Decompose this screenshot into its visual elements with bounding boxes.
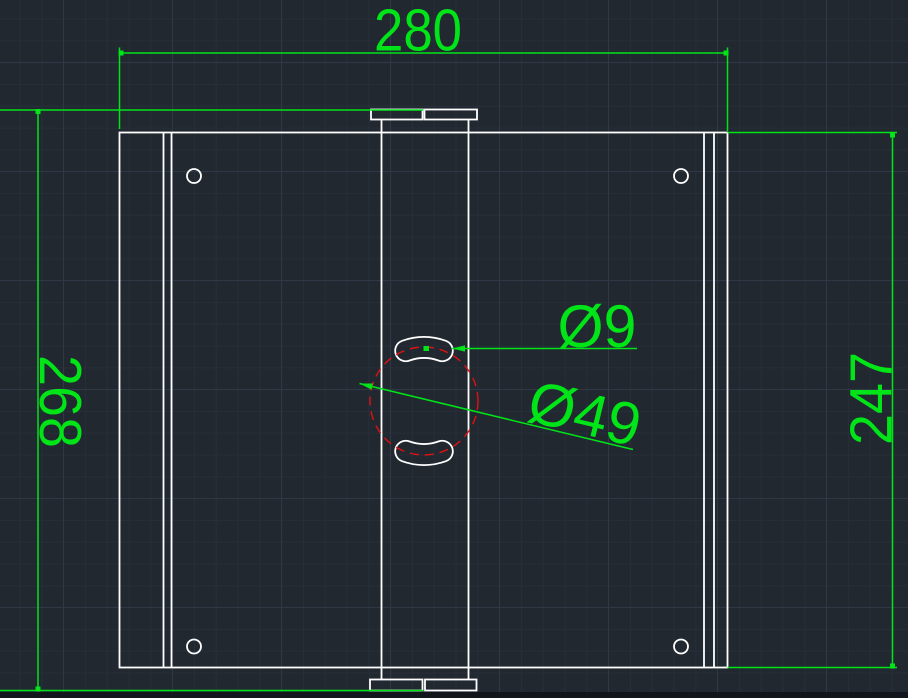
dimension-label-268[interactable]: 268	[27, 355, 93, 448]
leader-label-bolt-circle-dia[interactable]: Ø49	[522, 368, 648, 460]
corner-hole-bottom-left[interactable]	[187, 640, 201, 654]
corner-hole-top-right[interactable]	[674, 169, 688, 183]
dimension-label-247[interactable]: 247	[839, 352, 905, 445]
bolt-circle-centerline[interactable]	[370, 347, 478, 455]
slot-bottom[interactable]	[395, 441, 453, 465]
leader-label-slot-dia[interactable]: Ø9	[558, 293, 637, 360]
canvas-bottom-edge	[0, 692, 908, 698]
dimension-overall-height[interactable]: 268	[0, 109, 423, 692]
tab-bottom-right[interactable]	[425, 680, 477, 691]
leader-bolt-circle-diameter[interactable]: Ø49	[359, 368, 648, 460]
tab-top-right[interactable]	[425, 110, 478, 120]
endpoint-marker	[724, 51, 729, 56]
slot-center-marker	[424, 346, 430, 351]
leader-slot-diameter[interactable]: Ø9	[424, 293, 638, 360]
tab-bottom-left[interactable]	[370, 680, 423, 691]
endpoint-marker	[890, 664, 895, 669]
endpoint-marker	[36, 109, 41, 114]
cad-drawing-canvas[interactable]: 280 268 247 Ø9	[0, 0, 908, 698]
dimension-plate-height[interactable]: 247	[728, 133, 905, 669]
endpoint-marker	[36, 687, 41, 692]
dimension-label-280[interactable]: 280	[374, 0, 462, 64]
corner-hole-bottom-right[interactable]	[674, 640, 688, 654]
tab-top-left[interactable]	[371, 110, 423, 120]
corner-hole-top-left[interactable]	[187, 169, 201, 183]
endpoint-marker	[890, 133, 895, 138]
dimension-overall-width[interactable]: 280	[119, 0, 729, 131]
drawing-svg: 280 268 247 Ø9	[0, 0, 908, 698]
endpoint-marker	[119, 51, 124, 56]
